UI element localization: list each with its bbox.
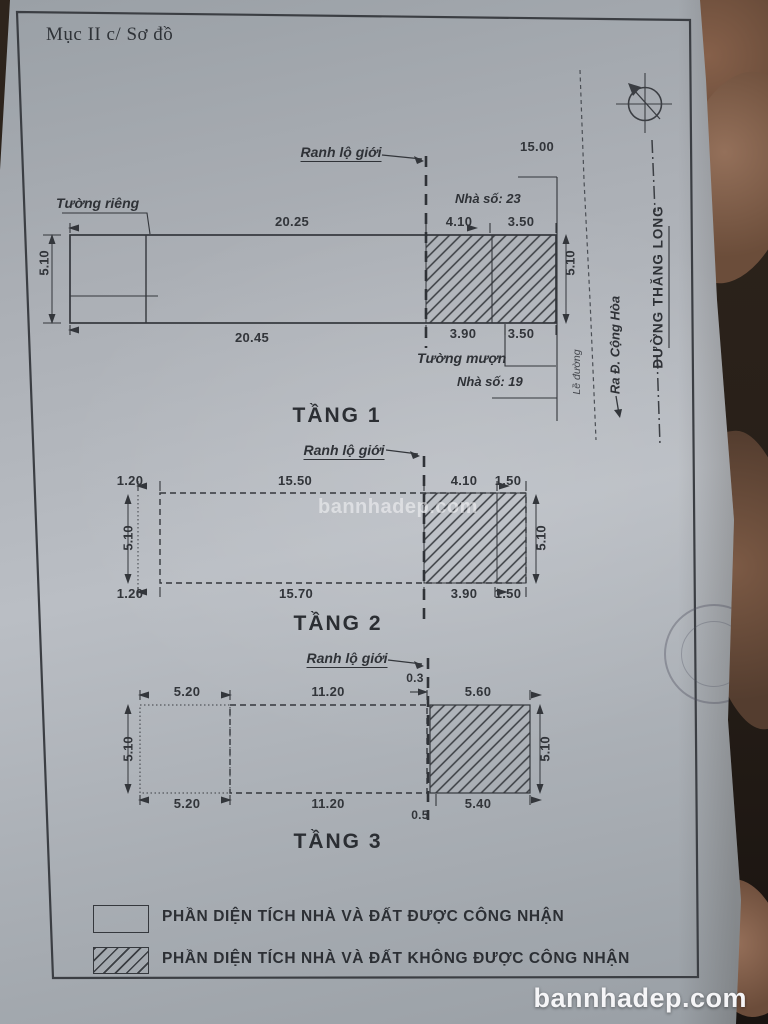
floor3-dim: 5.20	[174, 684, 201, 699]
floor3-dim: 11.20	[311, 796, 344, 811]
floor2-dim: 15.70	[279, 586, 313, 601]
legend-swatch-recognized	[93, 905, 149, 933]
floor3-dim: 11.20	[311, 684, 344, 699]
street-lines	[555, 60, 705, 490]
floor3-boundary-label: Ranh lộ giới	[307, 650, 388, 668]
floor1-boundary-label: Ranh lộ giới	[301, 144, 382, 162]
frontage-dim: 15.00	[520, 139, 554, 154]
bottom-watermark: bannhadep.com	[533, 983, 747, 1014]
floor3-gap-top: 0.3	[406, 671, 424, 685]
floor2-dim: 15.50	[278, 473, 312, 488]
house-23-label: Nhà số: 23	[455, 191, 521, 206]
floor2-dim: 1.50	[495, 473, 522, 488]
floor3-dim-left: 5.10	[121, 736, 136, 761]
floor3-dim: 5.20	[174, 796, 201, 811]
floor3-gap-bottom: 0.5	[411, 808, 429, 822]
floor2-dim: 1.20	[117, 473, 144, 488]
to-cong-hoa-label: Ra Đ. Cộng Hòa	[608, 296, 623, 394]
floor2-dim: 1.50	[495, 586, 522, 601]
floor1-dim-left: 5.10	[37, 250, 52, 275]
floor1-dim: 4.10	[446, 214, 473, 229]
legend-label-not-recognized: PHẦN DIỆN TÍCH NHÀ VÀ ĐẤT KHÔNG ĐƯỢC CÔN…	[162, 950, 630, 968]
sidewalk-label: Lề đường	[571, 349, 583, 394]
floor2-boundary-label: Ranh lộ giới	[304, 442, 385, 460]
floor2-dim: 1.20	[117, 586, 144, 601]
floor2-dim-right: 5.10	[534, 525, 549, 550]
photo-scene: Mục II c/ Sơ đồ	[0, 0, 768, 1024]
floor3-hatched-area	[430, 705, 530, 793]
floor3-dim-right: 5.10	[538, 736, 553, 761]
floor-3-title: TẦNG 3	[293, 830, 382, 854]
floor1-hatched-area	[426, 235, 556, 323]
floor-1-lines	[30, 140, 610, 445]
private-wall-label: Tường riêng	[56, 195, 139, 211]
floor-1-title: TẦNG 1	[292, 404, 381, 428]
floor3-dim: 5.60	[465, 684, 492, 699]
floor2-dim-left: 5.10	[121, 525, 136, 550]
legend-swatch-not-recognized	[93, 947, 149, 974]
document-paper: Mục II c/ Sơ đồ	[0, 0, 768, 1024]
floor2-dim: 3.90	[451, 586, 478, 601]
floor-2-title: TẦNG 2	[293, 612, 382, 636]
floor1-dim: 3.90	[450, 326, 477, 341]
floor1-dim: 3.50	[508, 214, 535, 229]
street-name-label: ĐƯỜNG THĂNG LONG	[651, 205, 666, 368]
floor1-dim: 20.25	[275, 214, 309, 229]
floor2-dim: 4.10	[451, 473, 478, 488]
floor-2-lines	[100, 440, 560, 625]
center-watermark: bannhadep.com	[318, 496, 478, 519]
page-title: Mục II c/ Sơ đồ	[46, 24, 173, 46]
legend-label-recognized: PHẦN DIỆN TÍCH NHÀ VÀ ĐẤT ĐƯỢC CÔNG NHẬN	[162, 908, 564, 926]
borrowed-wall-label: Tường mượn	[417, 350, 506, 366]
floor1-dim: 3.50	[508, 326, 535, 341]
floor1-dim: 20.45	[235, 330, 269, 345]
floor3-dim: 5.40	[465, 796, 492, 811]
house-19-label: Nhà số: 19	[457, 374, 523, 389]
